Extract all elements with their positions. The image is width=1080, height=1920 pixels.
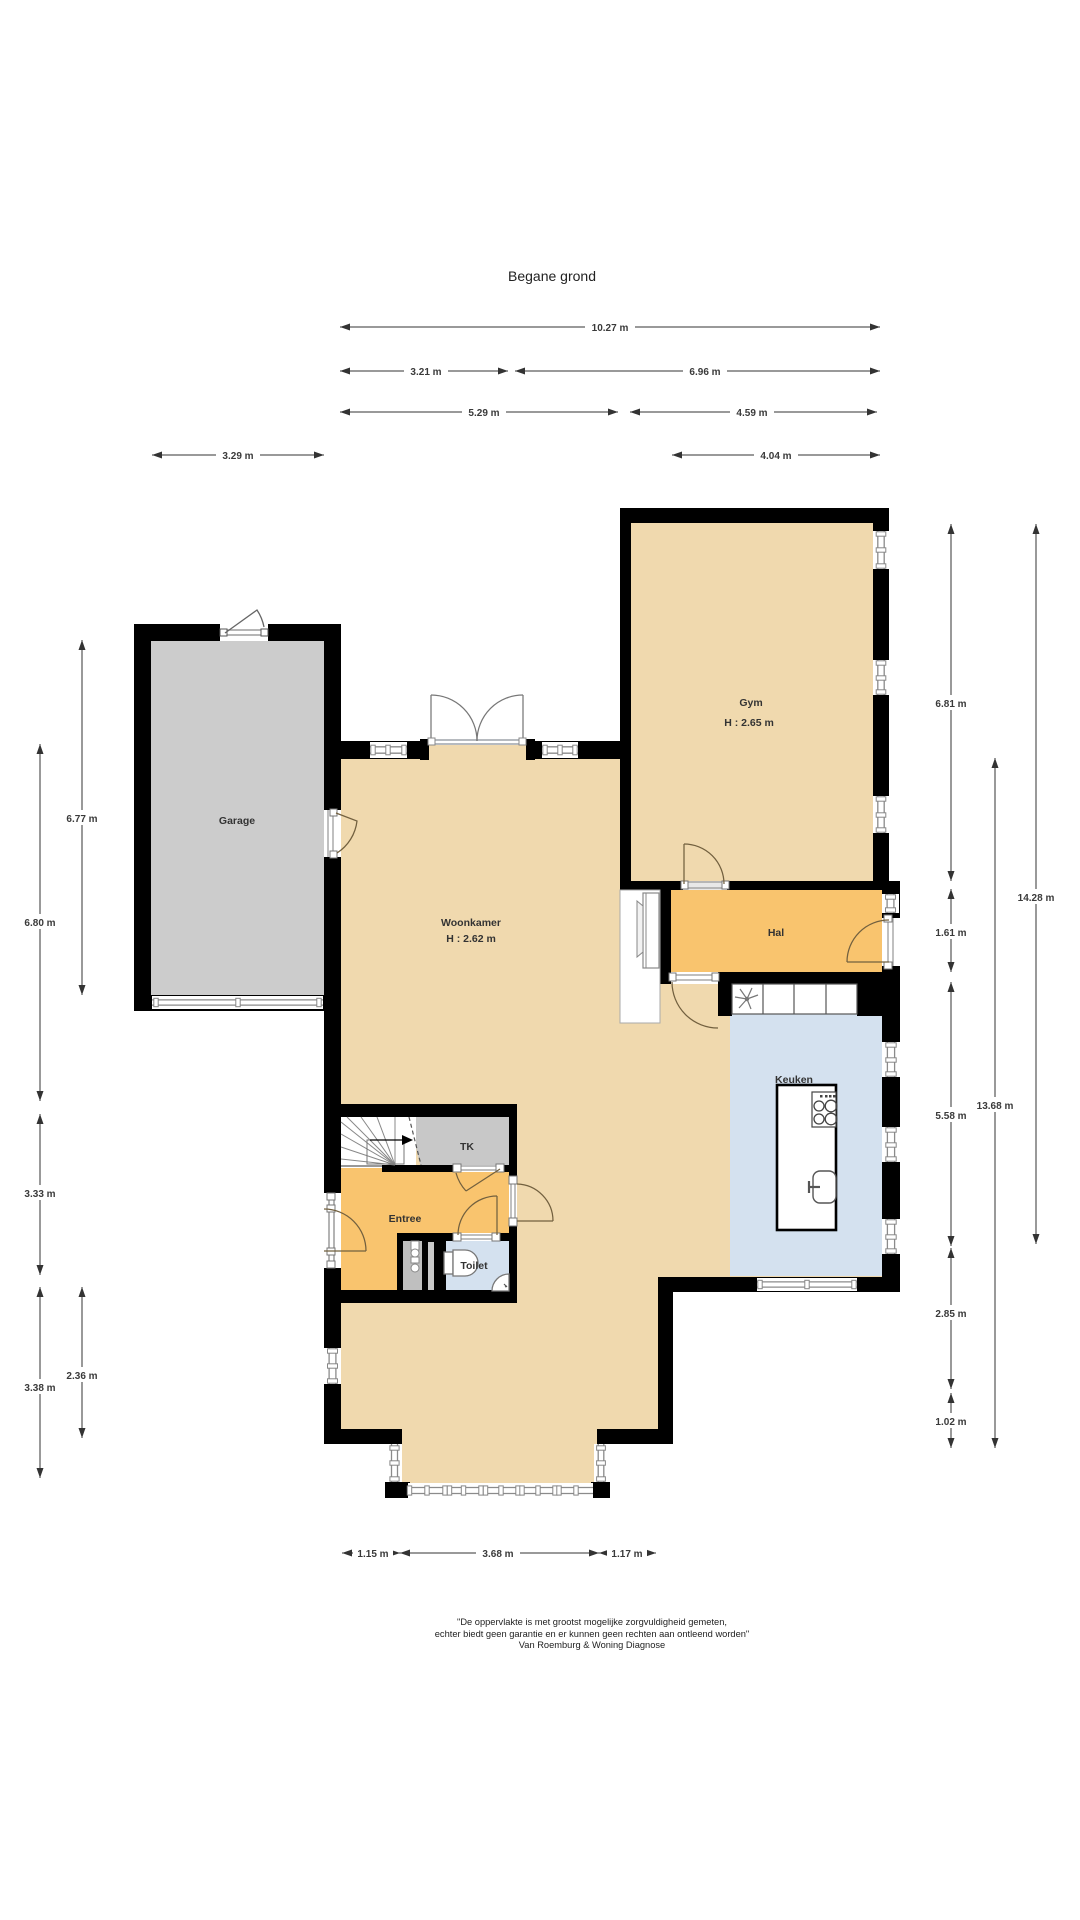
svg-text:Woonkamer: Woonkamer: [441, 917, 501, 929]
svg-text:1.15 m: 1.15 m: [357, 1549, 388, 1560]
svg-text:"De oppervlakte is met grootst: "De oppervlakte is met grootst mogelijke…: [457, 1617, 727, 1627]
svg-text:Gym: Gym: [739, 697, 762, 709]
svg-text:5.29 m: 5.29 m: [468, 408, 499, 419]
svg-text:14.28 m: 14.28 m: [1018, 893, 1055, 904]
svg-text:3.68 m: 3.68 m: [482, 1549, 513, 1560]
svg-text:10.27 m: 10.27 m: [592, 323, 629, 334]
svg-text:Keuken: Keuken: [775, 1074, 813, 1086]
svg-text:1.02 m: 1.02 m: [935, 1417, 966, 1428]
svg-text:4.04 m: 4.04 m: [760, 451, 791, 462]
svg-text:Hal: Hal: [768, 927, 784, 939]
svg-text:6.77 m: 6.77 m: [66, 814, 97, 825]
svg-text:2.85 m: 2.85 m: [935, 1309, 966, 1320]
svg-text:3.33 m: 3.33 m: [24, 1189, 55, 1200]
svg-text:Entree: Entree: [389, 1213, 422, 1225]
svg-text:Toilet: Toilet: [460, 1260, 488, 1272]
svg-text:6.80 m: 6.80 m: [24, 918, 55, 929]
svg-text:H : 2.62 m: H : 2.62 m: [446, 933, 496, 945]
svg-text:2.36 m: 2.36 m: [66, 1371, 97, 1382]
svg-text:1.61 m: 1.61 m: [935, 928, 966, 939]
svg-text:6.81 m: 6.81 m: [935, 699, 966, 710]
svg-text:Garage: Garage: [219, 815, 255, 827]
svg-text:Begane grond: Begane grond: [508, 268, 596, 284]
svg-text:1.17 m: 1.17 m: [611, 1549, 642, 1560]
svg-text:echter biedt geen garantie en: echter biedt geen garantie en er kunnen …: [435, 1629, 749, 1639]
svg-text:Van Roemburg & Woning Diagnose: Van Roemburg & Woning Diagnose: [519, 1640, 665, 1650]
svg-text:4.59 m: 4.59 m: [736, 408, 767, 419]
svg-text:H : 2.65 m: H : 2.65 m: [724, 717, 774, 729]
svg-text:13.68 m: 13.68 m: [977, 1101, 1014, 1112]
svg-text:5.58 m: 5.58 m: [935, 1111, 966, 1122]
svg-text:3.21 m: 3.21 m: [410, 367, 441, 378]
svg-text:6.96 m: 6.96 m: [689, 367, 720, 378]
svg-text:3.38 m: 3.38 m: [24, 1383, 55, 1394]
svg-text:3.29 m: 3.29 m: [222, 451, 253, 462]
svg-text:TK: TK: [460, 1141, 474, 1153]
